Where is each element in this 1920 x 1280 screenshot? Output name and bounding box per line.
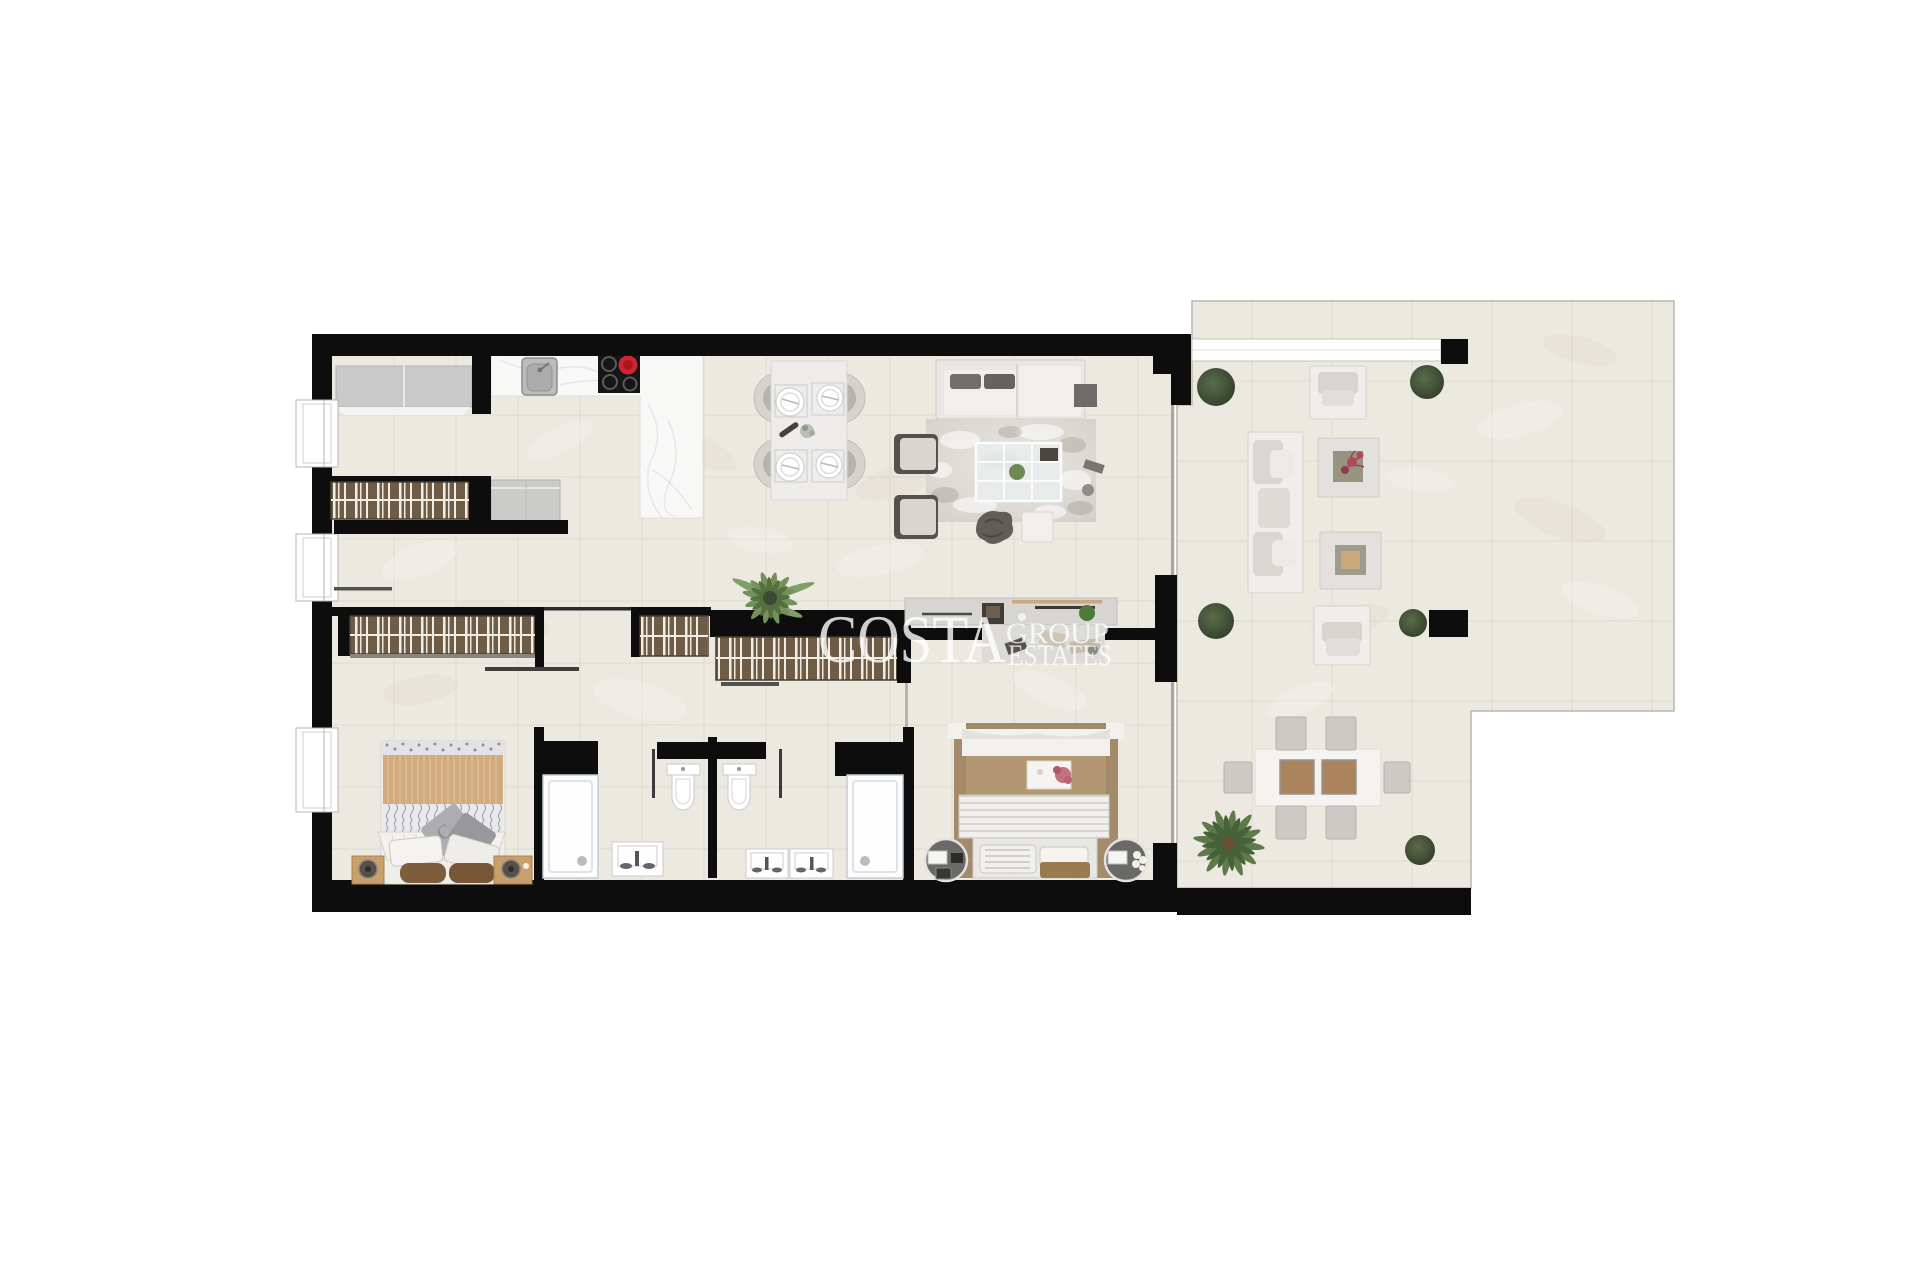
svg-text:COSTA: COSTA (818, 601, 1006, 677)
svg-text:ESTATES: ESTATES (1008, 639, 1112, 672)
